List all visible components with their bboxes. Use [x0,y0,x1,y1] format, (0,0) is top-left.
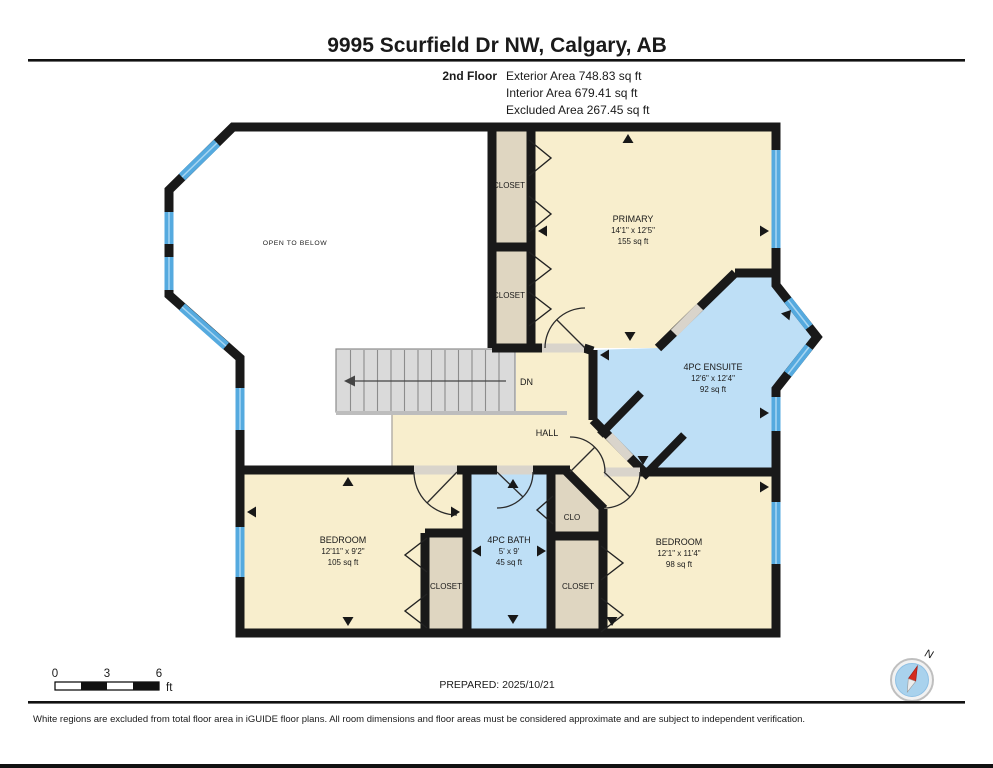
room-area-bedroom-left: 105 sq ft [328,558,359,567]
scale-bar-seg2 [133,682,159,690]
room-label-closet-top: CLOSET [493,181,525,190]
scale-tick-6: 6 [156,668,162,680]
scale-tick-3: 3 [104,668,110,680]
compass: N [891,648,935,701]
scale-tick-0: 0 [52,668,58,680]
scale-unit: ft [166,682,173,694]
room-dims-bath: 5' x 9' [499,547,520,556]
room-area-bedroom-right: 98 sq ft [666,560,693,569]
room-dims-bedroom-left: 12'11" x 9'2" [321,547,364,556]
room-label-open-to-below: OPEN TO BELOW [263,240,328,247]
scale-bar-seg1 [81,682,107,690]
stairs-dn-label: DN [520,377,533,387]
room-area-bath: 45 sq ft [496,558,523,567]
floorplan-page: 9995 Scurfield Dr NW, Calgary, AB 2nd Fl… [0,0,993,768]
footer-divider [28,701,965,704]
room-dims-bedroom-right: 12'1" x 11'4" [657,549,700,558]
bedroom-right-door-sill [604,468,640,477]
room-label-ensuite: 4PC ENSUITE [683,362,742,372]
primary-door-sill [542,344,584,353]
room-label-bedroom-right: BEDROOM [656,537,703,547]
footer-disclaimer: White regions are excluded from total fl… [33,714,805,725]
bedroom-left-door-sill [414,466,457,475]
closet-column-fill [492,127,531,348]
room-label-closet-br: CLOSET [562,582,594,591]
page-title: 9995 Scurfield Dr NW, Calgary, AB [327,34,667,57]
stair-rail [336,411,567,415]
scale-bar: 0 3 6 ft [52,668,173,694]
bottom-border [0,764,993,768]
room-label-bedroom-left: BEDROOM [320,535,367,545]
room-dims-ensuite: 12'6" x 12'4" [691,374,735,383]
room-label-primary: PRIMARY [613,214,654,224]
room-label-closet-bl: CLOSET [430,582,462,591]
room-label-hall: HALL [536,428,559,438]
stat-interior: Interior Area 679.41 sq ft [506,86,638,100]
floor-plan-figure: 9995 Scurfield Dr NW, Calgary, AB 2nd Fl… [0,0,993,768]
bath-door-sill [497,466,533,475]
room-area-ensuite: 92 sq ft [700,385,727,394]
room-dims-primary: 14'1" x 12'5" [611,226,655,235]
room-label-clo: CLO [564,513,580,522]
floor-label: 2nd Floor [442,69,497,83]
prepared-date: PREPARED: 2025/10/21 [439,679,555,691]
stat-exterior: Exterior Area 748.83 sq ft [506,69,642,83]
stat-excluded: Excluded Area 267.45 sq ft [506,103,650,117]
room-area-primary: 155 sq ft [618,237,649,246]
room-label-closet-mid: CLOSET [493,291,525,300]
room-label-bath: 4PC BATH [487,535,530,545]
compass-north-label: N [923,648,935,662]
header-divider [28,59,965,62]
